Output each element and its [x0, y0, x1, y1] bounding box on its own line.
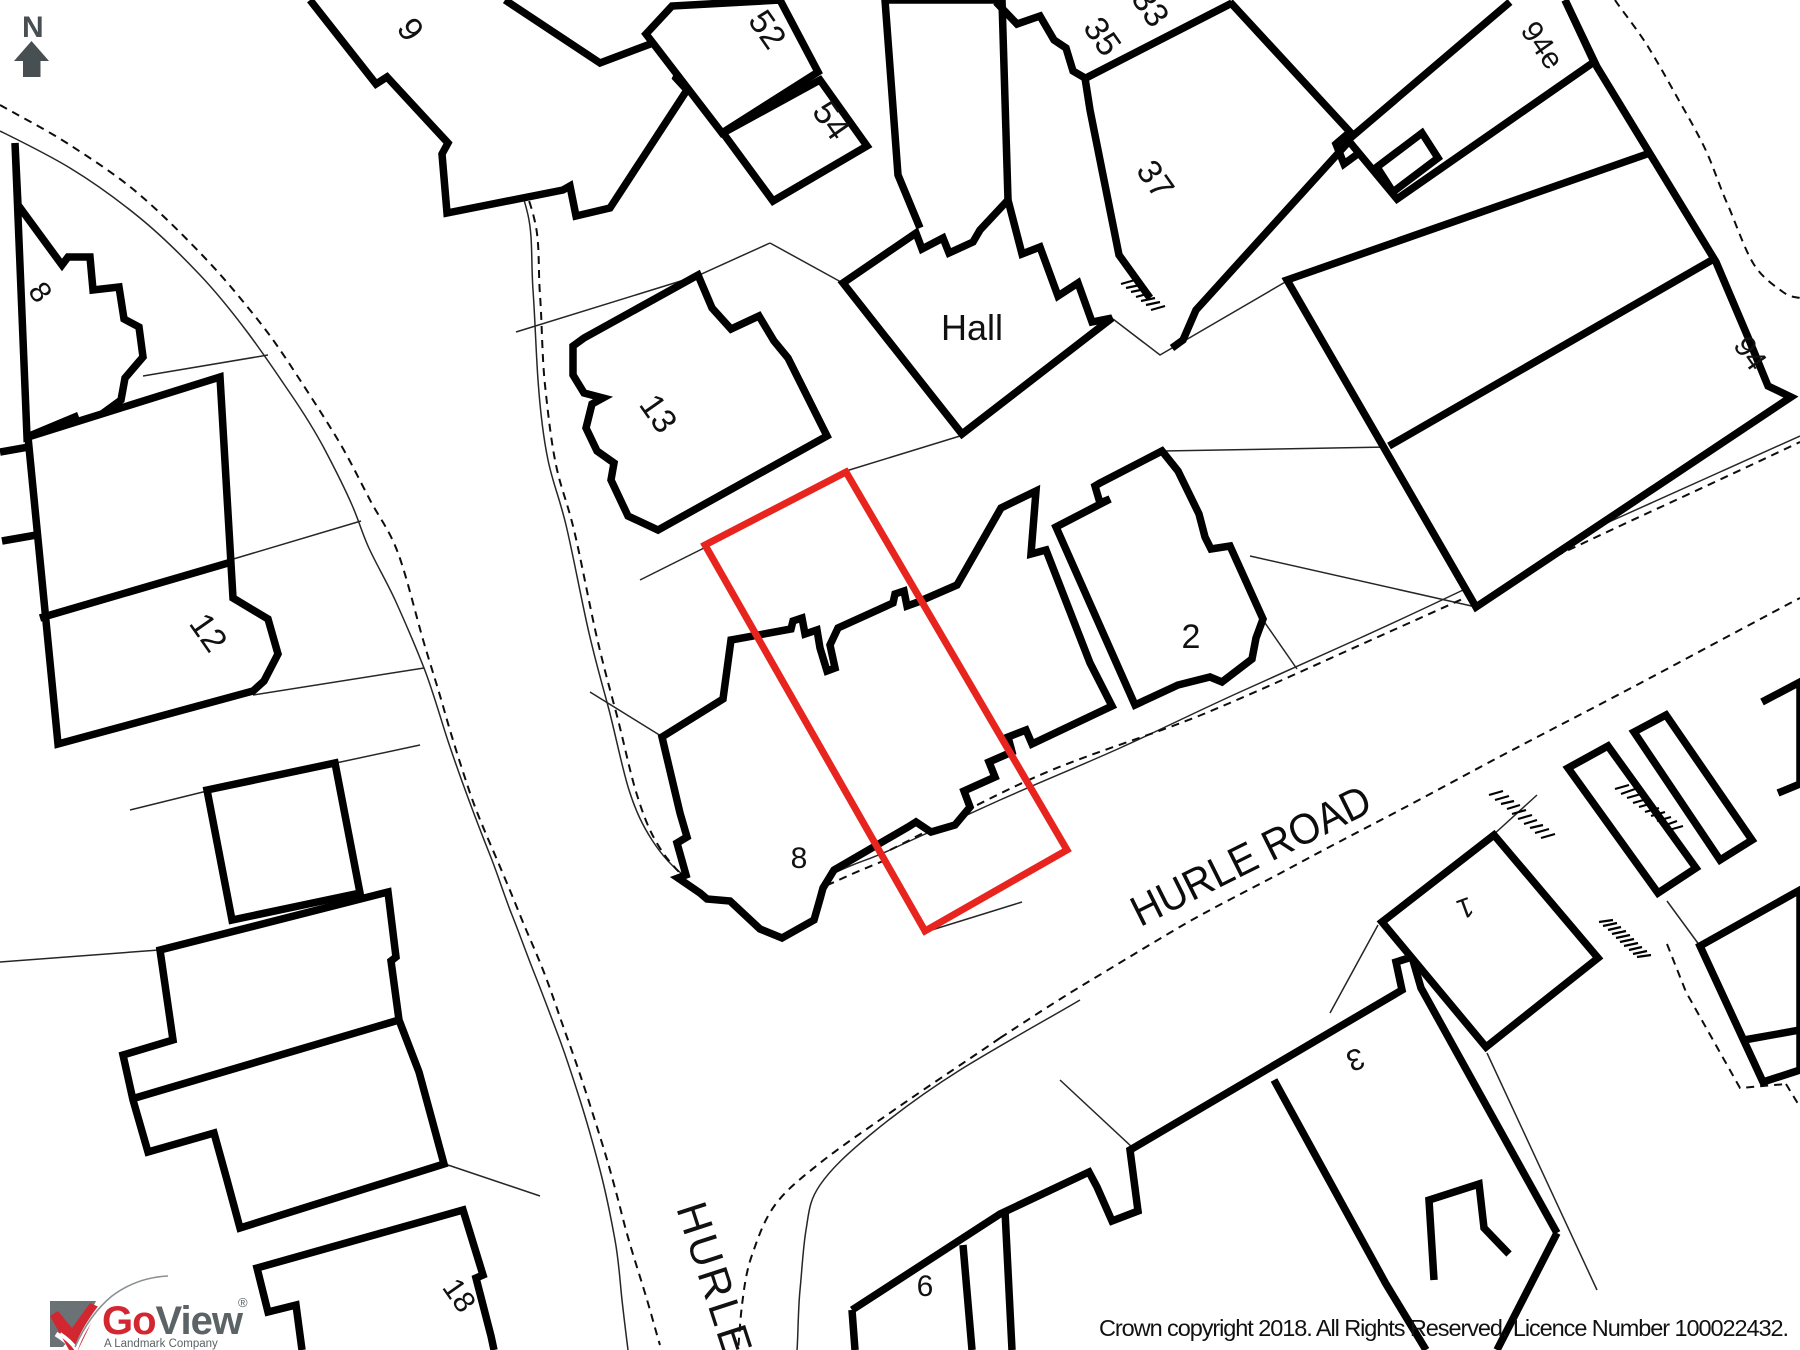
svg-text:2: 2 — [1182, 618, 1201, 656]
svg-text:A Landmark Company: A Landmark Company — [104, 1338, 218, 1350]
svg-text:Hall: Hall — [941, 307, 1003, 348]
svg-text:GoView: GoView — [102, 1299, 244, 1343]
svg-text:N: N — [22, 11, 44, 44]
svg-text:®: ® — [238, 1295, 248, 1310]
svg-text:Crown copyright 2018. All Righ: Crown copyright 2018. All Rights Reserve… — [1099, 1315, 1789, 1341]
svg-text:8: 8 — [791, 842, 808, 875]
svg-text:6: 6 — [917, 1270, 934, 1303]
